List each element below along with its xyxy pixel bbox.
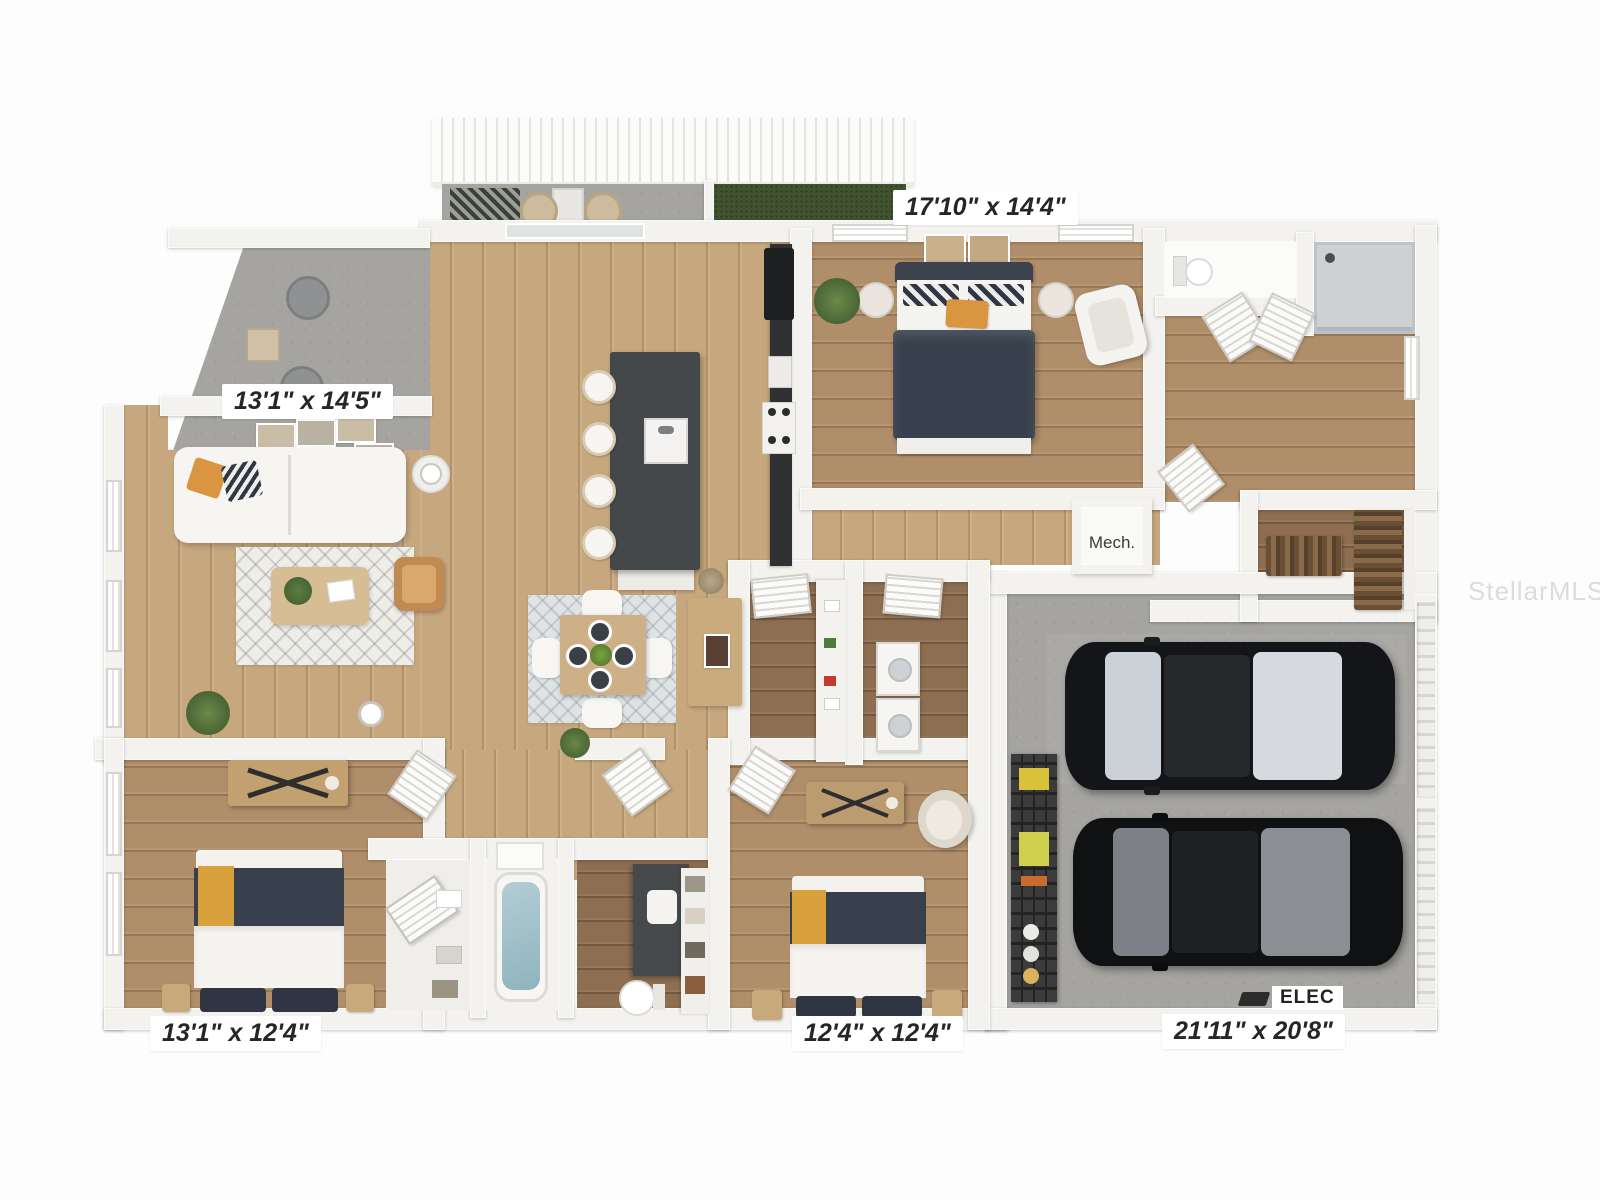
elec-label: ELEC: [1272, 986, 1343, 1010]
dresser: [228, 760, 348, 806]
car-mirror: [1152, 813, 1168, 822]
round-chair-cushion: [926, 800, 962, 840]
master-nightstand: [1038, 282, 1074, 318]
pantry-item: [824, 638, 836, 648]
bed-pillow-dark: [200, 988, 266, 1012]
master-art: [968, 234, 1010, 264]
bed-duvet-white: [790, 944, 926, 998]
porch-table: [246, 328, 280, 362]
bedroom-left-window: [106, 872, 122, 956]
storage-item-orange: [1021, 876, 1047, 886]
bedroom-middle: [730, 750, 990, 1018]
storage-bin-yellow: [1019, 768, 1049, 790]
console-art: [704, 634, 730, 668]
place-setting: [588, 668, 612, 692]
garage: [1007, 594, 1415, 1008]
master-art: [924, 234, 966, 264]
shelf-item: [685, 942, 705, 958]
bedroom-middle-dimensions: 12'4" x 12'4": [792, 1016, 963, 1051]
dining-chair: [532, 638, 562, 678]
lanai-patio: [432, 118, 914, 230]
mech-label: Mech.: [1081, 533, 1143, 553]
toilet-tank: [653, 984, 665, 1010]
living-room: [116, 405, 432, 750]
wall-porch-top: [168, 228, 430, 248]
shelf-item: [685, 976, 705, 994]
laundry-door: [882, 574, 943, 619]
nightstand: [346, 984, 374, 1012]
storage-ball: [1023, 924, 1039, 940]
car-black-bottom: [1073, 818, 1403, 966]
master-toilet-room: [1165, 242, 1296, 298]
shelf-item: [685, 908, 705, 924]
dresser-x-detail: [806, 782, 904, 824]
storage-ball: [1023, 946, 1039, 962]
bathroom-tub-room: [486, 858, 558, 1010]
master-duvet: [893, 330, 1035, 440]
towel-stack: [436, 890, 462, 908]
place-setting: [588, 620, 612, 644]
closet-clothes-rod: [1266, 536, 1342, 576]
coffee-table-book: [327, 579, 356, 602]
dresser-x-detail: [228, 760, 348, 806]
bedroom-middle-closet-door: [728, 745, 796, 815]
linen-door: [385, 875, 459, 945]
living-window: [106, 480, 122, 552]
master-pillow-orange: [945, 299, 988, 329]
table-centerpiece: [590, 644, 612, 666]
toilet-alcove: [496, 842, 544, 870]
wall-rightwing-right: [1415, 225, 1437, 625]
elec-panel-icon: [1238, 992, 1271, 1006]
master-bed-headboard: [895, 262, 1033, 282]
floor-lamp: [358, 701, 384, 727]
shower-glass: [1317, 327, 1412, 331]
porch-chair: [286, 276, 330, 320]
car-roof: [1164, 655, 1250, 776]
bathtub-water-curtain: [502, 882, 540, 990]
toilet-bowl: [619, 980, 655, 1016]
car-mirror: [1144, 786, 1160, 795]
storage-bin-yellow: [1019, 832, 1049, 866]
car-mirror: [1144, 637, 1160, 646]
mechanical-closet: Mech.: [1072, 498, 1152, 574]
car-roof: [1172, 831, 1258, 952]
pantry-door: [750, 573, 812, 619]
dresser: [806, 782, 904, 824]
watermark: StellarMLS: [1468, 576, 1600, 607]
master-plant: [814, 278, 860, 324]
car-rear-glass: [1253, 652, 1342, 779]
bed-pillow-dark: [796, 996, 856, 1018]
car-windshield: [1105, 652, 1161, 779]
bedroom-left-window: [106, 772, 122, 856]
dining-chair: [582, 698, 622, 728]
master-window: [1058, 224, 1134, 242]
nightstand: [162, 984, 190, 1012]
floor-plan: Mech.: [0, 0, 1600, 1200]
gallery-frame: [336, 415, 376, 443]
storage-ball: [1023, 968, 1039, 984]
washer-door: [888, 658, 912, 682]
towel-stack: [432, 980, 458, 998]
wall-closet-top: [1240, 490, 1437, 510]
bed-throw-mustard: [198, 866, 234, 928]
shelf-item: [685, 876, 705, 892]
nightstand: [752, 990, 782, 1020]
coffee-table-plant: [284, 577, 312, 605]
hall-window: [1404, 336, 1420, 400]
towel-stack: [436, 946, 462, 964]
place-setting: [612, 644, 636, 668]
linen-room: [386, 860, 470, 1010]
dryer-door: [888, 714, 912, 738]
bedroom-left-dimensions: 13'1" x 12'4": [150, 1016, 321, 1051]
sofa-cushion-line: [288, 455, 291, 535]
living-window: [106, 668, 122, 728]
master-bed-foot: [897, 438, 1031, 454]
pantry-item: [824, 698, 840, 710]
garage-door: [1417, 808, 1435, 1004]
garage-dimensions: 21'11" x 20'8": [1162, 1014, 1345, 1049]
place-setting: [566, 644, 590, 668]
dining-chair: [642, 638, 672, 678]
bathroom-right: [577, 858, 709, 1016]
living-room-dimensions: 13'1" x 14'5": [222, 384, 393, 419]
bed-pillow-dark: [862, 996, 922, 1018]
garage-door: [1417, 602, 1435, 798]
gallery-frame: [296, 419, 336, 447]
sofa-pillow-zebra: [221, 460, 264, 503]
car-windshield: [1113, 828, 1169, 955]
console-plant: [698, 568, 724, 594]
master-bedroom: [800, 230, 1165, 510]
shower-head: [1325, 253, 1335, 263]
patio-fence: [432, 118, 914, 186]
hall-plant: [560, 728, 590, 758]
toilet-bowl: [1185, 258, 1213, 286]
living-window: [106, 580, 122, 652]
bed-pillow-dark: [272, 988, 338, 1012]
car-mirror: [1152, 962, 1168, 971]
car-silver-top: [1065, 642, 1395, 790]
potted-plant: [186, 691, 230, 735]
bed-duvet-white: [194, 926, 344, 988]
master-shower: [1314, 242, 1415, 334]
bed-throw-mustard: [792, 890, 826, 946]
master-nightstand: [858, 282, 894, 318]
pantry-item: [824, 600, 840, 612]
vanity-sink: [647, 890, 677, 924]
car-rear-glass: [1261, 828, 1350, 955]
master-window: [832, 224, 908, 242]
master-bedroom-dimensions: 17'10" x 14'4": [893, 190, 1078, 225]
pantry-item: [824, 676, 836, 686]
